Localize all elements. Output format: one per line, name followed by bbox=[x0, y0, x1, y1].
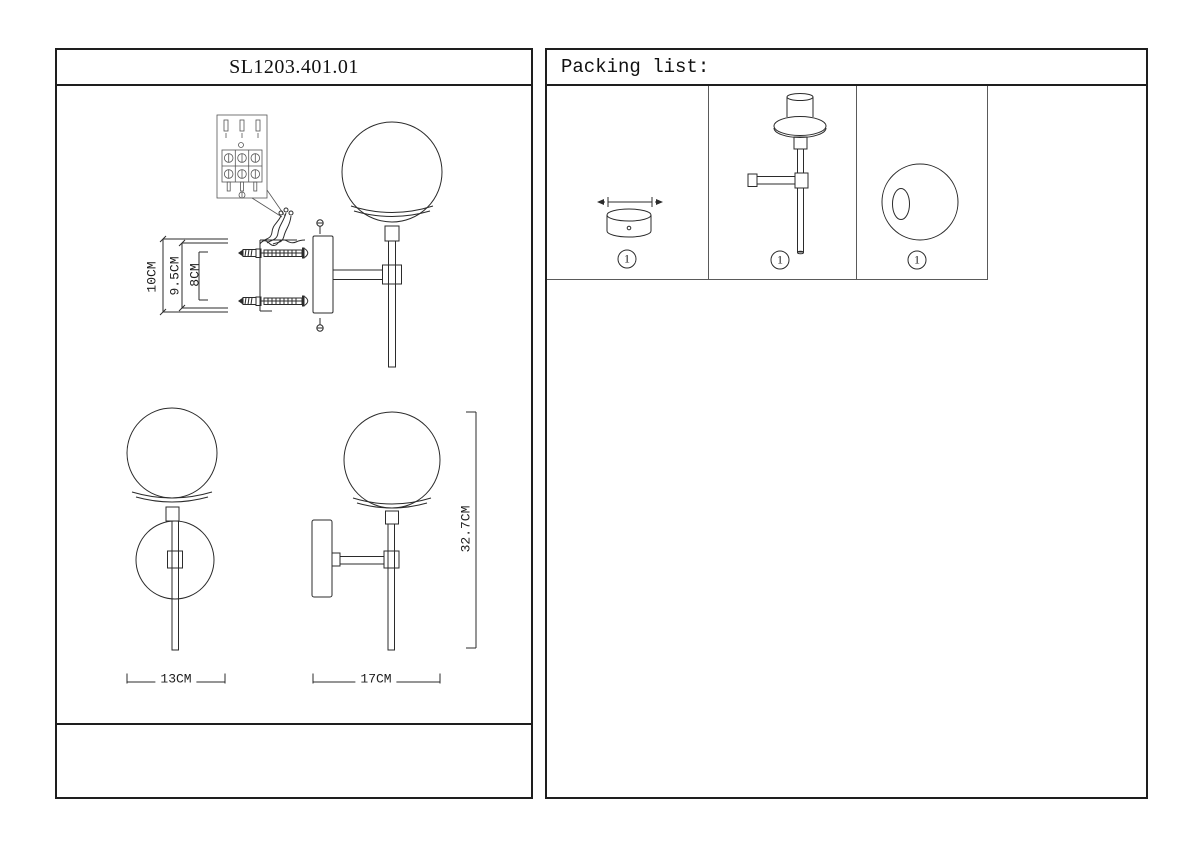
packing-list-title: Packing list: bbox=[561, 56, 709, 78]
globe-shade-drawing bbox=[882, 164, 958, 240]
model-number: SL1203.401.01 bbox=[229, 56, 359, 79]
installation-diagram bbox=[140, 100, 480, 375]
dim-9-5cm-label: 9.5CM bbox=[168, 256, 183, 295]
footer-divider bbox=[57, 723, 531, 725]
front-view bbox=[127, 408, 217, 650]
dim-8cm-label: 8CM bbox=[188, 263, 203, 286]
dim-10cm-label: 10CM bbox=[145, 261, 160, 292]
wall-anchor-screw-bottom bbox=[238, 296, 308, 307]
wall-lamp-assembled bbox=[333, 122, 442, 367]
instruction-sheet: SL1203.401.01 bbox=[0, 0, 1200, 848]
wall-anchor-screw-top bbox=[238, 248, 308, 259]
orthographic-views bbox=[110, 400, 490, 700]
wall-bracket-profile bbox=[260, 240, 297, 311]
qty-badge-canopy: 1 bbox=[618, 250, 637, 269]
side-view bbox=[312, 412, 440, 650]
dim-17cm-label: 17CM bbox=[355, 672, 396, 687]
packing-list-header: Packing list: bbox=[547, 50, 1146, 86]
backplate-and-screws bbox=[313, 220, 333, 331]
lamp-body-drawing bbox=[748, 94, 826, 254]
terminal-block-inset bbox=[217, 115, 285, 217]
dim-32-7cm-label: 32.7CM bbox=[459, 506, 474, 553]
qty-badge-globe: 1 bbox=[908, 251, 927, 270]
model-number-header: SL1203.401.01 bbox=[57, 50, 531, 86]
canopy-drawing bbox=[597, 197, 663, 237]
dim-13cm-label: 13CM bbox=[155, 672, 196, 687]
qty-badge-lamp-body: 1 bbox=[771, 251, 790, 270]
